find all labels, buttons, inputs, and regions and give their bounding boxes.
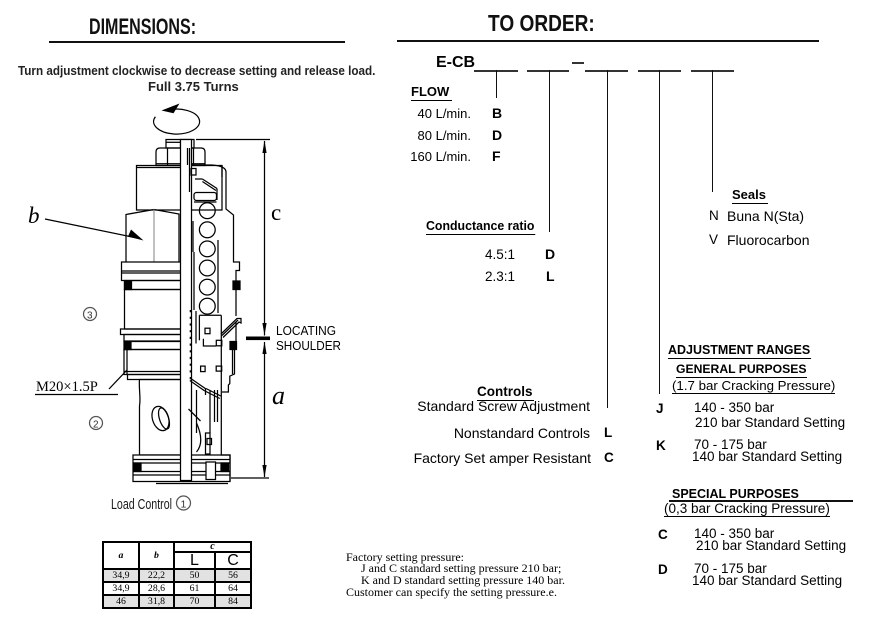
svg-text:a: a bbox=[272, 381, 285, 410]
svg-text:LOCATING: LOCATING bbox=[276, 324, 336, 338]
svg-text:M20×1.5P: M20×1.5P bbox=[36, 379, 98, 395]
svg-text:c: c bbox=[271, 200, 281, 225]
svg-text:b: b bbox=[28, 203, 40, 228]
svg-text:2: 2 bbox=[93, 420, 99, 431]
svg-text:Load Control: Load Control bbox=[111, 497, 172, 513]
svg-text:SHOULDER: SHOULDER bbox=[276, 339, 341, 353]
svg-text:3: 3 bbox=[87, 311, 93, 322]
svg-text:1: 1 bbox=[181, 499, 187, 511]
